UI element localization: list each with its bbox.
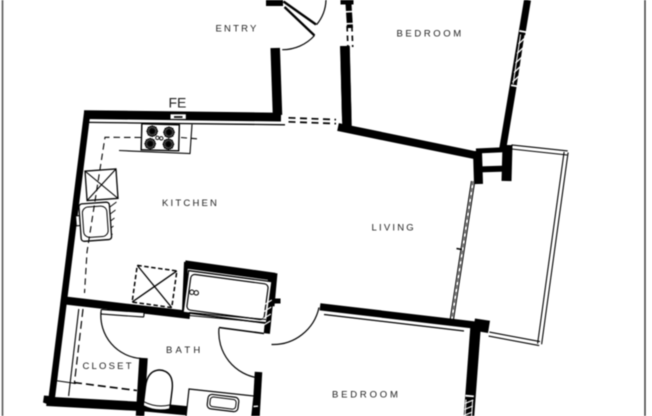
- svg-text:BEDROOM: BEDROOM: [332, 390, 401, 401]
- svg-text:LIVING: LIVING: [372, 223, 416, 234]
- svg-text:ENTRY: ENTRY: [216, 24, 259, 35]
- svg-text:BATH: BATH: [166, 345, 203, 356]
- svg-text:BEDROOM: BEDROOM: [397, 29, 464, 40]
- svg-text:KITCHEN: KITCHEN: [162, 198, 219, 209]
- svg-text:FE: FE: [169, 95, 187, 111]
- svg-text:CLOSET: CLOSET: [83, 361, 134, 372]
